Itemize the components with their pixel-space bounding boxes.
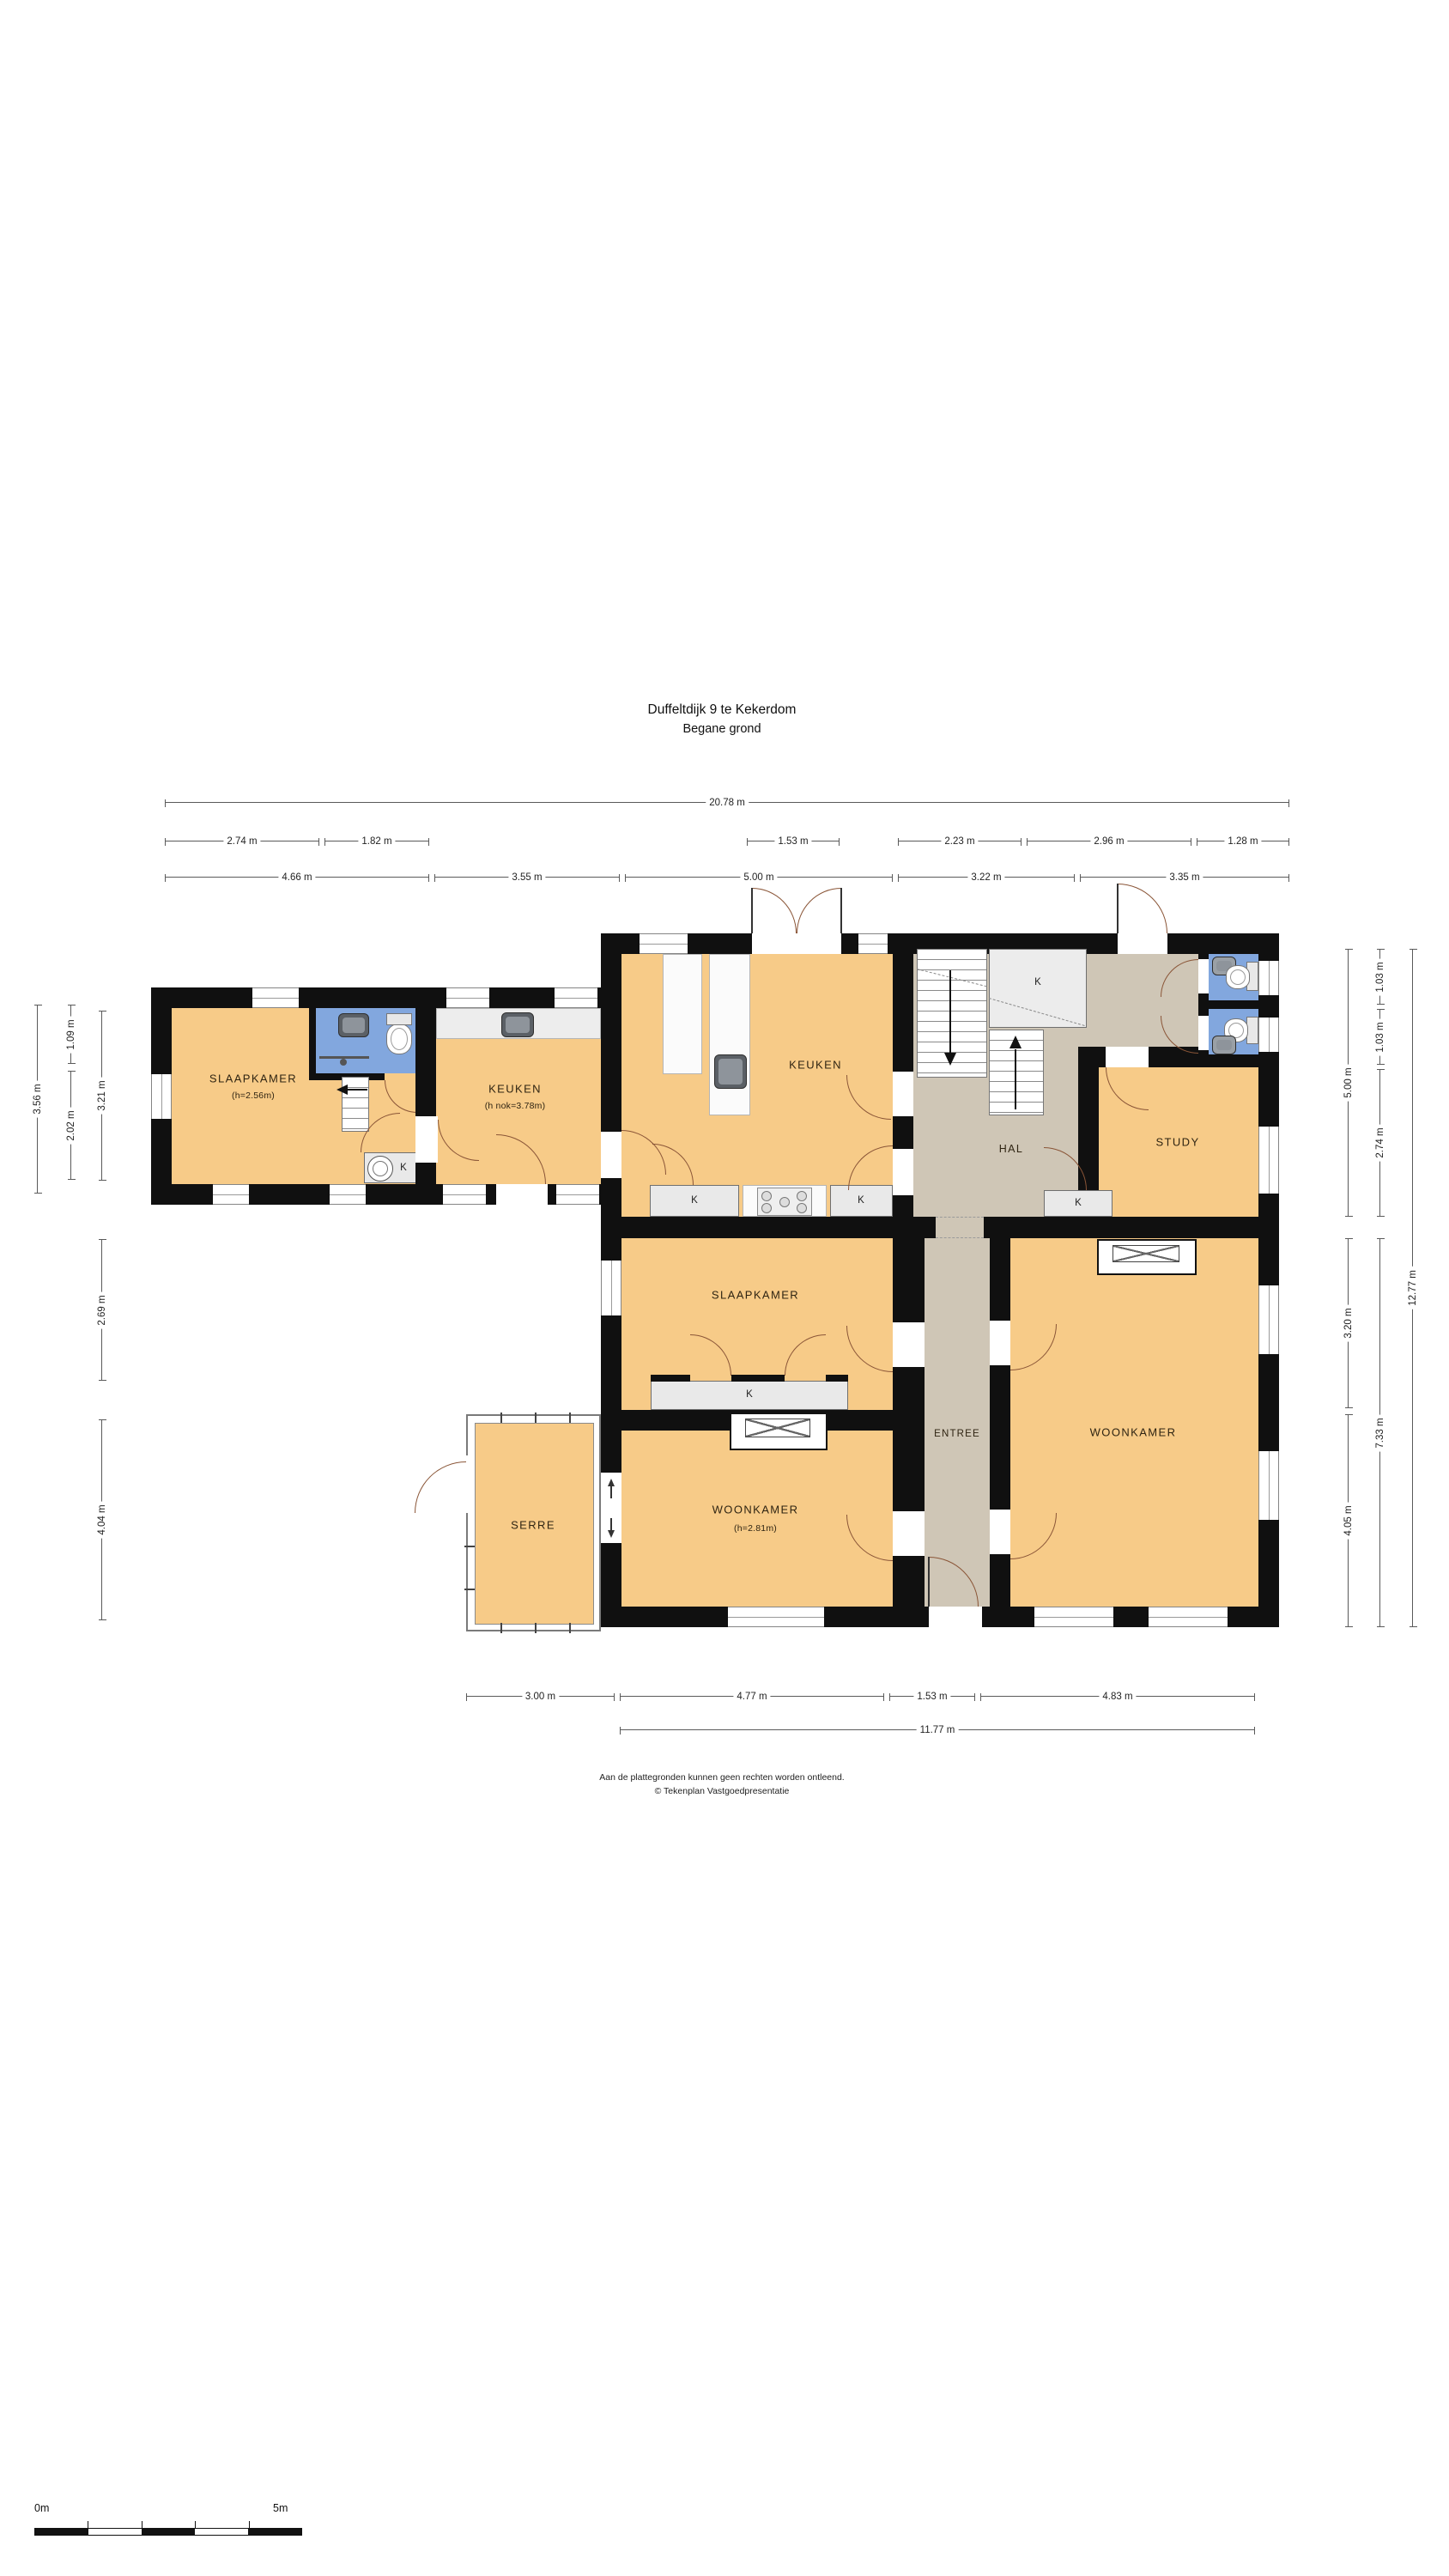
door-arc [752, 888, 797, 933]
dim-label: 1.03 m [1375, 958, 1385, 995]
room-label: STUDY [1155, 1136, 1199, 1149]
window [213, 1184, 249, 1205]
door-opening [893, 1149, 913, 1195]
dim-label: 4.83 m [1099, 1692, 1136, 1702]
burner-icon [779, 1197, 790, 1207]
double-door-opening [752, 933, 841, 954]
dim-label: 5.00 m [1343, 1064, 1354, 1101]
dim-label: 5.00 m [740, 872, 777, 883]
dim-label: 2.23 m [941, 836, 978, 847]
dim-label: 1.53 m [913, 1692, 950, 1702]
door-leaf [751, 888, 753, 933]
dim-label: 4.66 m [278, 872, 315, 883]
stair-arrow-down-icon [944, 1053, 956, 1066]
window [1149, 1607, 1228, 1627]
dim-label: 4.05 m [1343, 1502, 1354, 1539]
fireplace-insert-icon [745, 1419, 810, 1437]
scale-bar [34, 2528, 302, 2536]
window [1258, 1018, 1279, 1052]
dim-label: 4.04 m [97, 1501, 107, 1538]
window [728, 1607, 824, 1627]
dim-label: 2.96 m [1090, 836, 1127, 847]
dim-top: 3.22 m [898, 877, 1075, 878]
passage-arrow-stem [610, 1518, 612, 1530]
burner-icon [797, 1203, 807, 1213]
window [252, 987, 299, 1008]
wall [826, 1375, 848, 1382]
passage-arrow-up-icon [608, 1479, 615, 1486]
dim-label: 4.77 m [733, 1692, 770, 1702]
dim-top: 4.66 m [165, 877, 429, 878]
window [1258, 961, 1279, 995]
window [1258, 1451, 1279, 1520]
dim-label: 3.21 m [97, 1077, 107, 1114]
dim-label: 2.74 m [1375, 1124, 1385, 1161]
sink-icon [714, 1054, 747, 1089]
mullion-tick [535, 1413, 537, 1423]
closet-label: K [746, 1389, 753, 1400]
dim-right: 1.03 m [1379, 1009, 1380, 1065]
dim-bottom-total: 11.77 m [620, 1729, 1255, 1730]
dim-right: 7.33 m [1379, 1238, 1380, 1627]
kitchen-island [709, 954, 750, 1115]
window [446, 987, 489, 1008]
stair-arrow-up-icon [1009, 1036, 1022, 1048]
dim-top: 1.53 m [747, 841, 840, 841]
dim-right: 4.05 m [1348, 1414, 1349, 1627]
scale-tick [249, 2521, 250, 2528]
kitchen-counter [663, 954, 702, 1074]
front-door-opening [929, 1607, 982, 1627]
door-opening [601, 1132, 621, 1178]
dim-right: 12.77 m [1412, 949, 1413, 1627]
closet-label: K [858, 1195, 864, 1206]
window [601, 1261, 621, 1315]
door-leaf [1117, 884, 1119, 933]
window [443, 1184, 486, 1205]
dim-label: 3.22 m [967, 872, 1004, 883]
passage-arrow-down-icon [608, 1530, 615, 1538]
door-arc [797, 888, 841, 933]
scale-tick [142, 2521, 142, 2528]
dim-left: 3.56 m [37, 1005, 38, 1194]
dim-top: 3.35 m [1080, 877, 1289, 878]
dim-label: 2.74 m [223, 836, 260, 847]
window [640, 933, 688, 954]
door-leaf [840, 888, 842, 933]
room-woonkamer-east [1010, 1238, 1258, 1607]
scale-segment [248, 2529, 301, 2535]
dim-top: 2.23 m [898, 841, 1022, 841]
passage-arrow-stem [610, 1486, 612, 1498]
room-label: KEUKEN [789, 1059, 842, 1072]
scale-start-label: 0m [34, 2502, 49, 2514]
window [151, 1074, 172, 1119]
stair-arrow-left-icon [336, 1084, 348, 1095]
scale-segment [142, 2529, 195, 2535]
wall [731, 1375, 785, 1382]
dim-label: 3.00 m [522, 1692, 559, 1702]
dim-left: 1.09 m [70, 1005, 71, 1064]
door-opening [1106, 1047, 1149, 1067]
floorplan-page: Duffeltdijk 9 te Kekerdom Begane grond 2… [0, 0, 1449, 2576]
room-label: KEUKEN [488, 1083, 542, 1096]
sink-icon [1212, 1036, 1236, 1054]
dim-left: 3.21 m [101, 1011, 102, 1181]
shower-head-icon [340, 1059, 347, 1066]
stair-arrow-stem [347, 1089, 367, 1091]
window [1258, 1127, 1279, 1194]
dim-bottom: 3.00 m [466, 1696, 615, 1697]
dim-label: 1.53 m [774, 836, 811, 847]
entry-door-opening [1118, 933, 1167, 954]
mullion-tick [464, 1546, 475, 1547]
scale-tick [88, 2521, 88, 2528]
wall [651, 1375, 690, 1382]
door-opening [415, 1116, 438, 1163]
mullion-tick [500, 1413, 502, 1423]
mullion-tick [569, 1413, 571, 1423]
mullion-tick [535, 1623, 537, 1633]
dim-right: 3.20 m [1348, 1238, 1349, 1408]
washing-machine-icon [367, 1156, 393, 1182]
dim-right: 1.03 m [1379, 949, 1380, 1005]
dim-bottom: 4.77 m [620, 1696, 884, 1697]
fireplace-insert-icon [1113, 1245, 1179, 1262]
dim-label: 2.02 m [66, 1107, 76, 1144]
room-note: (h nok=3.78m) [485, 1101, 546, 1111]
dim-bottom: 4.83 m [980, 1696, 1255, 1697]
mullion-tick [569, 1623, 571, 1633]
door-opening [990, 1321, 1010, 1365]
door-opening [893, 1511, 925, 1556]
door-leaf [928, 1557, 930, 1607]
stove-icon [757, 1188, 812, 1216]
dim-left: 2.69 m [101, 1239, 102, 1381]
dim-top: 5.00 m [625, 877, 893, 878]
copyright: © Tekenplan Vastgoedpresentatie [151, 1786, 1293, 1796]
room-label: HAL [999, 1143, 1024, 1155]
room-label: WOONKAMER [1090, 1426, 1177, 1439]
dim-label: 3.20 m [1343, 1304, 1354, 1341]
door-opening [893, 1072, 913, 1116]
dim-label: 1.09 m [66, 1016, 76, 1053]
disclaimer: Aan de plattegronden kunnen geen rechten… [151, 1772, 1293, 1783]
room-entree [925, 1238, 990, 1607]
window [1034, 1607, 1113, 1627]
toilet-tank-icon [1246, 1017, 1258, 1044]
dim-bottom: 1.53 m [889, 1696, 975, 1697]
toilet-tank-icon [386, 1013, 412, 1025]
dim-label: 3.55 m [508, 872, 545, 883]
dim-label: 3.56 m [33, 1080, 43, 1117]
room-label: SLAAPKAMER [209, 1072, 297, 1085]
dim-label: 1.03 m [1375, 1018, 1385, 1055]
stair-closet [989, 949, 1087, 1028]
dim-right: 5.00 m [1348, 949, 1349, 1217]
room-note: (h=2.56m) [232, 1091, 275, 1101]
window [556, 1184, 599, 1205]
room-label: SERRE [511, 1519, 555, 1532]
sink-icon [501, 1012, 534, 1037]
window [330, 1184, 366, 1205]
scale-tick [195, 2521, 196, 2528]
dim-left: 4.04 m [101, 1419, 102, 1620]
toilet-icon [386, 1024, 412, 1054]
scale-segment [88, 2529, 142, 2535]
dim-label: 20.78 m [706, 798, 749, 808]
dim-top: 1.82 m [324, 841, 429, 841]
dim-top: 2.96 m [1027, 841, 1191, 841]
scale-end-label: 5m [273, 2502, 288, 2514]
dim-right: 2.74 m [1379, 1069, 1380, 1217]
door-opening [990, 1510, 1010, 1554]
door-opening [893, 1322, 925, 1367]
dim-total-width: 20.78 m [165, 802, 1289, 803]
door-arc [415, 1461, 466, 1513]
toilet-icon [1226, 965, 1250, 989]
page-subtitle: Begane grond [151, 722, 1293, 736]
burner-icon [797, 1191, 807, 1201]
dim-label: 7.33 m [1375, 1414, 1385, 1451]
dim-top: 3.55 m [434, 877, 620, 878]
stair-arrow-stem [949, 970, 951, 1053]
closet-label: K [400, 1163, 407, 1173]
page-title: Duffeltdijk 9 te Kekerdom [151, 702, 1293, 718]
dim-label: 11.77 m [917, 1725, 959, 1735]
scale-segment [35, 2529, 88, 2535]
hal-entree-passage [936, 1217, 984, 1238]
closet-label: K [1075, 1198, 1082, 1208]
mullion-tick [500, 1623, 502, 1633]
door-opening [496, 1184, 548, 1205]
mullion-tick [464, 1589, 475, 1590]
door-arc [1118, 884, 1167, 933]
door-opening [1198, 959, 1209, 993]
sink-icon [338, 1013, 369, 1037]
dim-top: 1.28 m [1197, 841, 1289, 841]
dim-top: 2.74 m [165, 841, 319, 841]
stair-arrow-stem [1015, 1049, 1016, 1109]
room-label: ENTREE [934, 1429, 980, 1439]
window [858, 933, 888, 954]
room-label: WOONKAMER [712, 1504, 799, 1516]
door-opening [1198, 1016, 1209, 1050]
burner-icon [761, 1203, 772, 1213]
room-note: (h=2.81m) [734, 1523, 777, 1534]
dim-label: 2.69 m [97, 1291, 107, 1328]
scale-segment [195, 2529, 248, 2535]
dim-label: 1.28 m [1224, 836, 1261, 847]
dim-label: 12.77 m [1408, 1267, 1418, 1309]
closet-label: K [1034, 977, 1041, 987]
window [555, 987, 597, 1008]
wall [309, 1008, 316, 1073]
burner-icon [761, 1191, 772, 1201]
room-label: SLAAPKAMER [712, 1289, 799, 1302]
dim-label: 3.35 m [1166, 872, 1203, 883]
dim-left: 2.02 m [70, 1071, 71, 1180]
closet-label: K [691, 1195, 698, 1206]
window [1258, 1285, 1279, 1354]
dim-label: 1.82 m [358, 836, 395, 847]
